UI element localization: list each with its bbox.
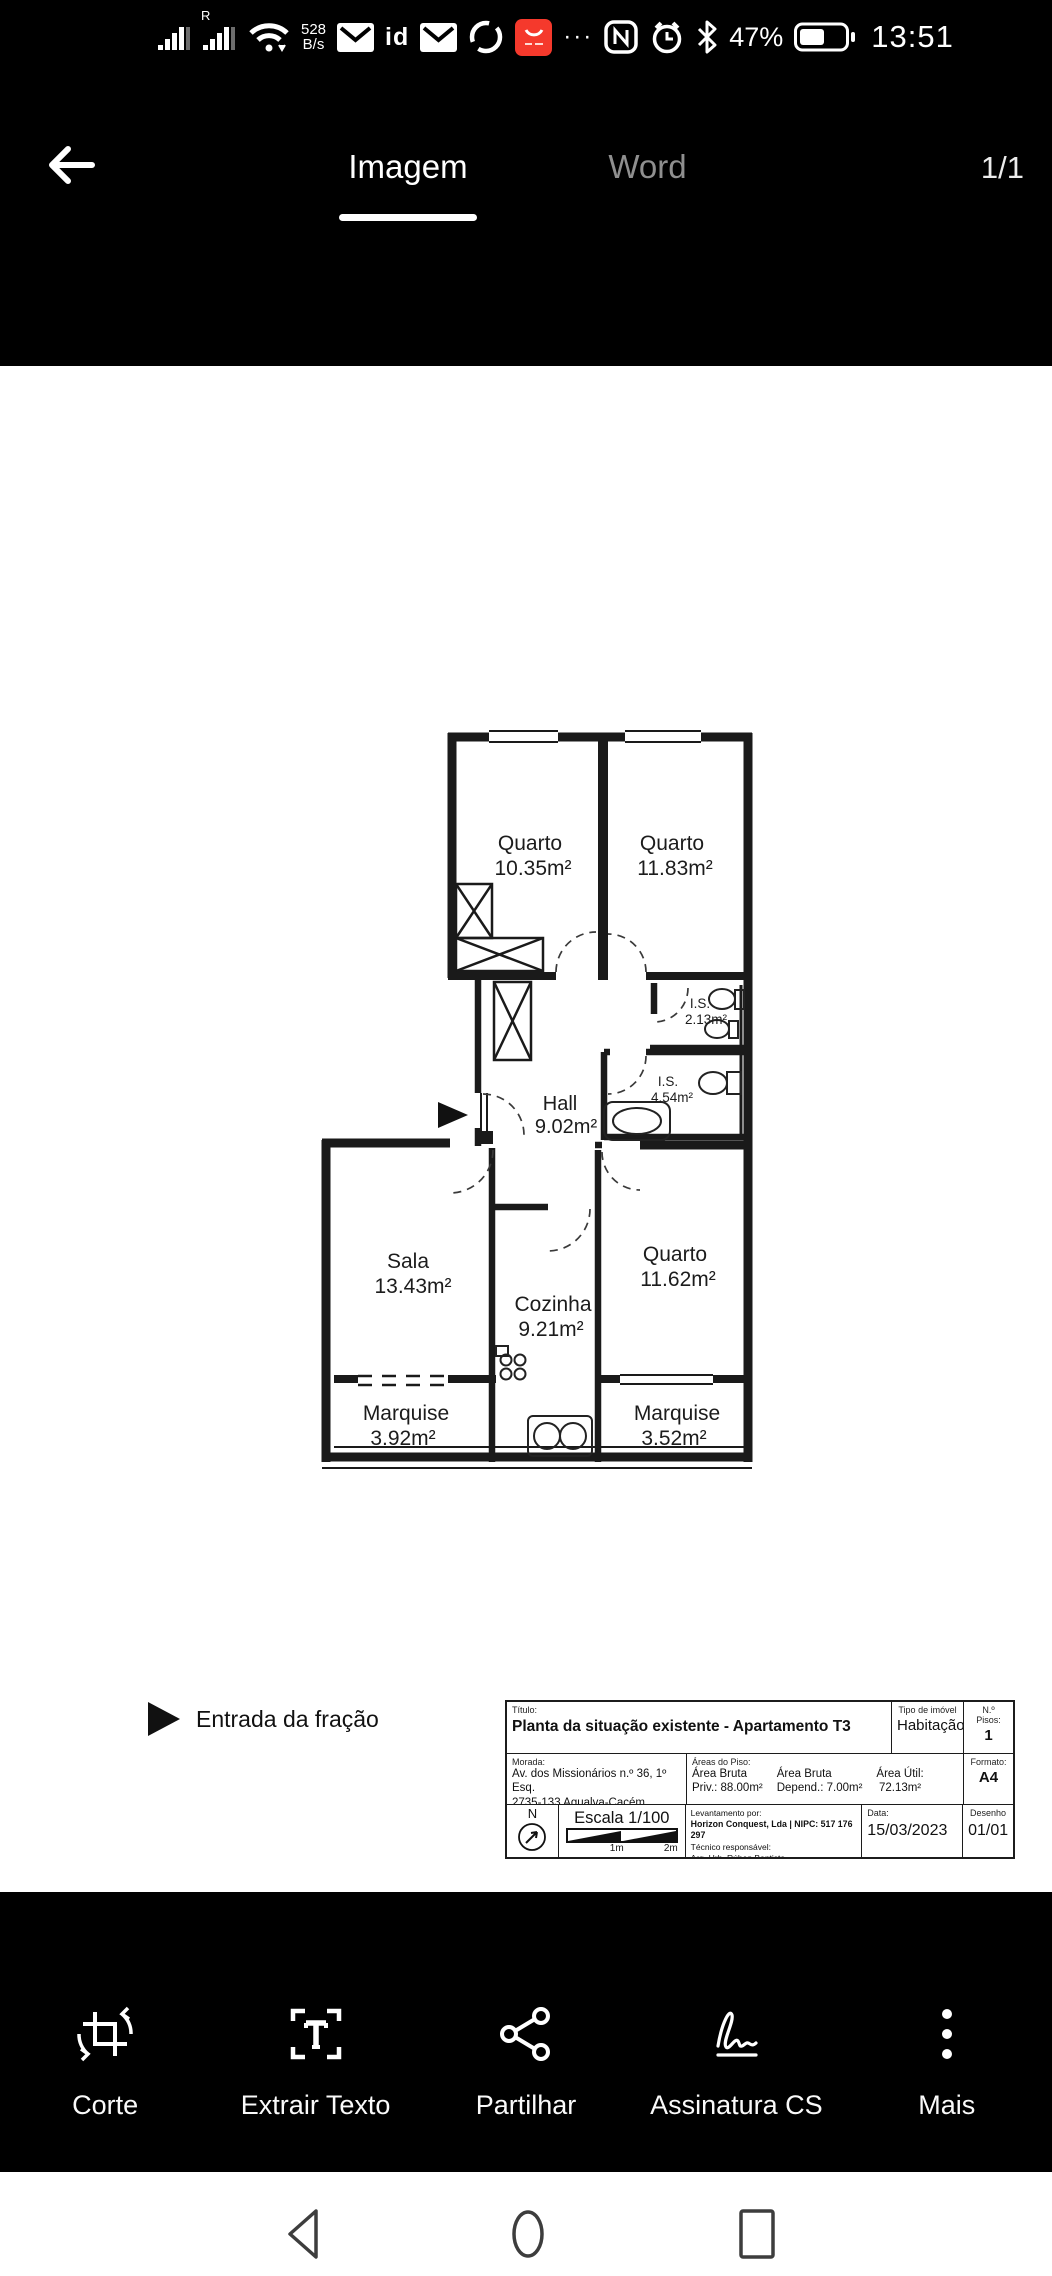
mail-icon — [337, 23, 374, 52]
areas-label: Áreas do Piso: — [692, 1757, 958, 1767]
date-cell: Data: 15/03/2023 — [862, 1805, 963, 1857]
page-indicator: 1/1 — [981, 150, 1024, 186]
sync-icon — [468, 19, 504, 55]
share-button[interactable]: Partilhar — [421, 2004, 631, 2121]
date-label: Data: — [867, 1808, 957, 1818]
signal-strength-icon — [158, 22, 192, 52]
room-label: Marquise — [634, 1402, 720, 1425]
tool-label: Partilhar — [476, 2090, 577, 2121]
signature-button[interactable]: Assinatura CS — [631, 2004, 841, 2121]
survey-company: Horizon Conquest, Lda | NIPC: 517 176 29… — [691, 1819, 853, 1840]
address-label: Morada: — [512, 1757, 681, 1767]
drawing-number: 01/01 — [968, 1822, 1008, 1840]
drawing-label: Desenho — [968, 1808, 1008, 1818]
floors-value: 1 — [969, 1727, 1008, 1744]
nav-recents-icon — [738, 2208, 776, 2260]
compass-icon — [516, 1821, 548, 1853]
tool-label: Extrair Texto — [241, 2090, 391, 2121]
crop-icon — [75, 2004, 135, 2064]
scale-label: Escala 1/100 — [574, 1809, 669, 1828]
battery-icon — [794, 21, 856, 53]
room-area: 13.43m² — [374, 1275, 451, 1298]
room-label: I.S. — [658, 1074, 678, 1089]
extract-text-icon — [286, 2004, 346, 2064]
room-label: Cozinha — [514, 1293, 591, 1316]
nav-back-button[interactable] — [284, 2208, 322, 2265]
top-black-region: R 528 B/s id ··· — [0, 0, 1052, 366]
more-notifications-dots: ··· — [563, 27, 593, 47]
document-image[interactable]: Quarto 10.35m² Quarto 11.83m² I.S. 2.13m… — [0, 366, 1052, 1892]
room-area: 10.35m² — [494, 857, 571, 880]
floors-label: N.º Pisos: — [969, 1705, 1008, 1725]
more-button[interactable]: Mais — [842, 2004, 1052, 2121]
nav-recents-button[interactable] — [738, 2208, 776, 2265]
nfc-icon — [604, 20, 638, 54]
room-area: 11.83m² — [637, 857, 712, 880]
technician-label: Técnico responsável: — [691, 1842, 857, 1853]
tool-label: Assinatura CS — [650, 2090, 823, 2121]
id-notification-icon: id — [385, 23, 409, 52]
survey-cell: Levantamento por: Horizon Conquest, Lda … — [686, 1805, 863, 1857]
room-area: 9.21m² — [518, 1318, 583, 1341]
property-type: Habitação — [897, 1717, 958, 1734]
room-label: Quarto — [643, 1243, 707, 1266]
drawing-title: Planta da situação existente - Apartamen… — [512, 1718, 886, 1736]
extract-text-button[interactable]: Extrair Texto — [211, 2004, 421, 2121]
room-label: Quarto — [498, 832, 562, 855]
date-value: 15/03/2023 — [867, 1822, 957, 1840]
room-label: Quarto — [640, 832, 704, 855]
property-type-label: Tipo de imóvel — [897, 1705, 958, 1715]
more-icon — [917, 2004, 977, 2064]
clock-time: 13:51 — [871, 19, 954, 55]
roaming-indicator: R — [201, 8, 210, 23]
room-area: 4.54m² — [651, 1090, 694, 1105]
share-icon — [496, 2004, 556, 2064]
title-block: Título: Planta da situação existente - A… — [505, 1700, 1015, 1859]
room-label: Sala — [387, 1250, 429, 1273]
scale-cell: Escala 1/100 1m 2m — [559, 1805, 686, 1857]
area-bruta-priv: Área Bruta Priv.: 88.00m² — [692, 1768, 763, 1796]
entrance-arrow-icon — [438, 1102, 468, 1128]
room-area: 3.52m² — [641, 1427, 706, 1450]
entrance-arrow-icon — [148, 1702, 180, 1736]
entrance-legend: Entrada da fração — [148, 1702, 379, 1736]
compass-letter: N — [512, 1806, 553, 1821]
room-label: Hall — [543, 1093, 577, 1115]
tab-word[interactable]: Word — [590, 148, 705, 186]
phone-screen: R 528 B/s id ··· — [0, 0, 1052, 2276]
signature-icon — [706, 2004, 766, 2064]
bottom-toolbar: Corte Extrair Texto Partilhar — [0, 1892, 1052, 2172]
crop-button[interactable]: Corte — [0, 2004, 210, 2121]
room-area: 11.62m² — [640, 1268, 715, 1291]
compass-cell: N — [507, 1805, 559, 1857]
survey-label: Levantamento por: — [691, 1808, 857, 1819]
active-tab-underline — [339, 214, 477, 221]
mail-2-icon — [420, 23, 457, 52]
format-value: A4 — [969, 1769, 1008, 1786]
address-line2: 2735-133 Agualva-Cacém, Sintra — [512, 1796, 681, 1804]
room-label: Marquise — [363, 1402, 449, 1425]
technician-name: Arq. Urb. Rúben Baptista — [691, 1853, 857, 1857]
tool-label: Corte — [72, 2090, 138, 2121]
back-arrow-icon — [46, 142, 98, 188]
format-label: Formato: — [969, 1757, 1008, 1767]
area-util: Área Útil: 72.13m² — [876, 1768, 923, 1796]
tool-label: Mais — [918, 2090, 975, 2121]
network-speed: 528 B/s — [301, 22, 326, 52]
nav-back-icon — [284, 2208, 322, 2260]
room-area: 2.13m² — [685, 1012, 728, 1027]
address-line1: Av. dos Missionários n.º 36, 1º Esq. — [512, 1767, 681, 1796]
status-bar: R 528 B/s id ··· — [0, 0, 1052, 64]
scale-tick-2m: 2m — [664, 1843, 678, 1854]
back-button[interactable] — [46, 142, 98, 193]
signal-strength-2-icon: R — [203, 22, 237, 52]
room-label: I.S. — [690, 996, 710, 1011]
area-bruta-depend: Área Bruta Depend.: 7.00m² — [777, 1768, 863, 1796]
alarm-icon — [649, 19, 685, 55]
scale-tick-1m: 1m — [610, 1843, 624, 1854]
scale-bar — [566, 1828, 678, 1843]
shopping-app-notification-icon — [515, 19, 552, 56]
tab-imagem[interactable]: Imagem — [330, 148, 486, 186]
room-area: 9.02m² — [535, 1116, 598, 1138]
battery-percent: 47% — [729, 22, 783, 53]
nav-home-icon — [510, 2208, 546, 2260]
nav-home-button[interactable] — [510, 2208, 546, 2265]
bluetooth-icon — [696, 20, 718, 54]
wifi-icon — [248, 21, 290, 53]
title-label: Título: — [512, 1705, 886, 1715]
drawing-cell: Desenho 01/01 — [963, 1805, 1013, 1857]
floor-plan-drawing: Quarto 10.35m² Quarto 11.83m² I.S. 2.13m… — [0, 366, 1052, 1892]
room-area: 3.92m² — [370, 1427, 435, 1450]
entrance-legend-label: Entrada da fração — [196, 1706, 379, 1733]
